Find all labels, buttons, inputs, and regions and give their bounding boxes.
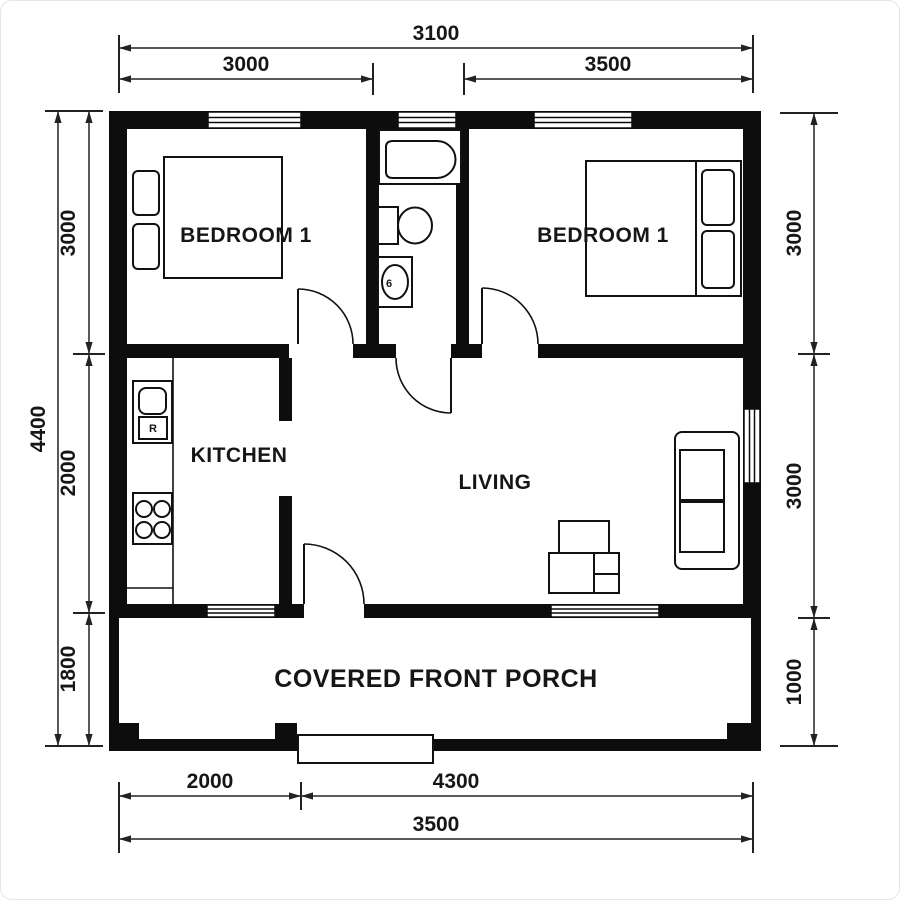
dim-top-overall: 3100 (413, 22, 460, 45)
porch-wall-bottom (109, 739, 761, 751)
window-living-porch (551, 605, 659, 617)
dim-right-middle: 3000 (783, 463, 806, 510)
kitchen-sink-unit: R (133, 381, 172, 443)
porch-post-mid (275, 723, 297, 741)
bathtub-icon (386, 141, 456, 178)
door-bedroom-left (298, 289, 353, 344)
opening-bedroom-left-door (289, 344, 353, 358)
toilet-icon (378, 207, 432, 244)
porch-post-right (727, 723, 753, 741)
dim-bottom-overall: 3500 (413, 813, 460, 836)
fridge-label: R (149, 423, 157, 435)
dim-top-left: 3000 (223, 53, 270, 76)
door-entry (304, 544, 364, 604)
wall-kitchen-divider-lower (279, 496, 292, 604)
floor-plan-page: 6 R (0, 0, 900, 900)
dim-left-lower: 1800 (57, 646, 80, 693)
dim-bottom-right: 4300 (433, 770, 480, 793)
label-porch: COVERED FRONT PORCH (274, 665, 597, 693)
bed-left (133, 157, 282, 278)
dim-left-middle: 2000 (57, 450, 80, 497)
doors (298, 288, 538, 604)
dim-left-overall: 4400 (27, 406, 50, 453)
wall-left (109, 111, 127, 618)
dim-left-upper: 3000 (57, 210, 80, 257)
basin-icon: 6 (378, 257, 412, 307)
bed-left-mattress (164, 157, 282, 278)
label-bedroom-right: BEDROOM 1 (537, 224, 669, 247)
kitchen-fixtures: R (127, 358, 173, 604)
bed-right-pillow-2 (702, 231, 734, 288)
bed-right-pillow-1 (702, 170, 734, 225)
porch-step (298, 735, 433, 763)
window-bedroom-right (534, 112, 632, 128)
dim-top-right: 3500 (585, 53, 632, 76)
bed-left-pillow-2 (133, 224, 159, 269)
dimensions-right: 3000 3000 1000 (780, 113, 838, 746)
opening-bedroom-right-door (482, 344, 538, 358)
dimensions-left: 4400 3000 2000 1800 (27, 111, 105, 746)
window-living-right (744, 409, 760, 483)
door-bathroom (396, 358, 451, 413)
door-bedroom-right (482, 288, 538, 344)
label-living: LIVING (458, 471, 531, 494)
opening-entry-door (304, 604, 364, 618)
label-bedroom-left: BEDROOM 1 (180, 224, 312, 247)
dim-bottom-left: 2000 (187, 770, 234, 793)
opening-bathroom-door (396, 344, 451, 358)
window-bathroom (398, 112, 456, 128)
floor-plan-svg: 6 R (1, 1, 900, 900)
window-kitchen-porch (207, 605, 275, 617)
label-kitchen: KITCHEN (191, 444, 288, 467)
media-table-icon (549, 521, 619, 593)
porch-post-left (113, 723, 139, 741)
basin-label: 6 (386, 278, 392, 290)
bed-left-pillow-1 (133, 171, 159, 215)
wall-right (743, 111, 761, 618)
sofa-icon (675, 432, 739, 569)
stove-icon (133, 493, 172, 544)
dim-right-upper: 3000 (783, 210, 806, 257)
dimensions-bottom: 2000 4300 3500 (119, 770, 753, 853)
dimensions-top: 3100 3000 3500 (119, 22, 753, 95)
window-bedroom-left (208, 112, 301, 128)
bathroom-fixtures: 6 (378, 130, 461, 307)
dim-right-lower: 1000 (783, 659, 806, 706)
